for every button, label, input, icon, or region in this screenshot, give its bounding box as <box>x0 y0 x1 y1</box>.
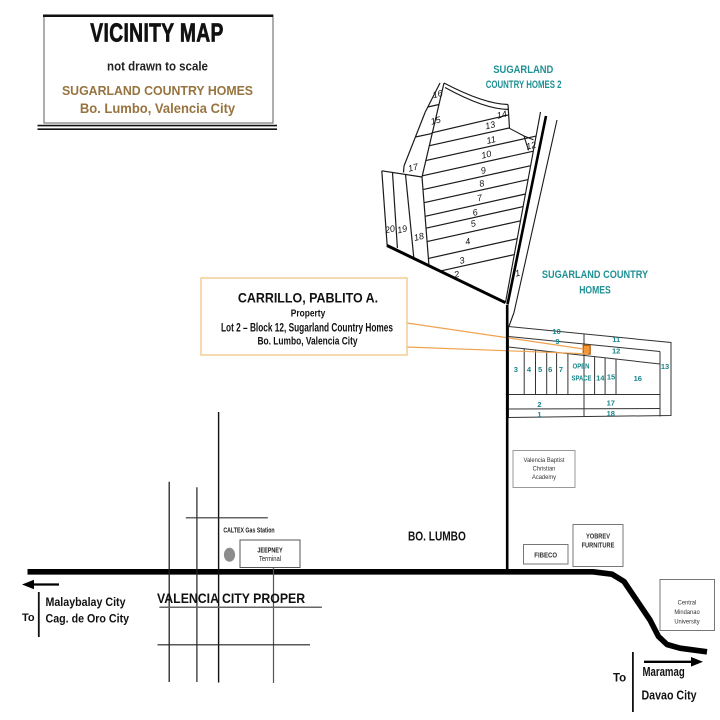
svg-text:3: 3 <box>514 365 518 374</box>
svg-text:14: 14 <box>496 109 508 121</box>
svg-text:4: 4 <box>527 365 532 374</box>
svg-text:OPEN: OPEN <box>573 363 590 371</box>
svg-text:Terminal: Terminal <box>259 555 282 563</box>
svg-text:CALTEX Gas Station: CALTEX Gas Station <box>223 527 274 535</box>
svg-text:COUNTRY HOMES 2: COUNTRY HOMES 2 <box>486 79 562 92</box>
svg-text:To: To <box>22 612 35 624</box>
svg-text:6: 6 <box>548 365 552 374</box>
svg-text:9: 9 <box>480 165 487 176</box>
svg-text:BO. LUMBO: BO. LUMBO <box>408 531 466 544</box>
svg-text:SPACE: SPACE <box>571 375 592 383</box>
svg-text:18: 18 <box>607 409 615 418</box>
svg-text:4: 4 <box>464 236 471 247</box>
svg-text:11: 11 <box>485 134 496 146</box>
svg-text:10: 10 <box>480 149 492 161</box>
svg-text:6: 6 <box>471 207 478 218</box>
svg-text:Valencia Baptist: Valencia Baptist <box>524 457 565 465</box>
svg-text:17: 17 <box>607 399 615 408</box>
svg-text:YOBREV: YOBREV <box>586 533 611 541</box>
svg-text:16: 16 <box>634 374 642 383</box>
svg-text:VICINITY MAP: VICINITY MAP <box>90 17 223 47</box>
svg-text:12: 12 <box>612 347 620 356</box>
svg-text:7: 7 <box>559 365 563 374</box>
svg-text:Bo. Lumbo, Valencia City: Bo. Lumbo, Valencia City <box>80 101 236 117</box>
svg-text:Mindanao: Mindanao <box>674 609 700 617</box>
svg-text:not drawn to scale: not drawn to scale <box>107 59 208 74</box>
svg-text:Bo. Lumbo, Valencia City: Bo. Lumbo, Valencia City <box>257 335 357 348</box>
svg-text:Academy: Academy <box>532 474 557 482</box>
svg-text:HOMES: HOMES <box>579 285 611 297</box>
svg-text:2: 2 <box>537 400 541 409</box>
svg-text:11: 11 <box>612 335 620 344</box>
svg-text:1: 1 <box>537 410 541 419</box>
svg-text:15: 15 <box>430 114 443 126</box>
svg-text:FURNITURE: FURNITURE <box>582 542 615 550</box>
svg-text:Christian: Christian <box>533 465 556 473</box>
svg-text:19: 19 <box>396 223 408 235</box>
svg-text:Maramag: Maramag <box>643 666 685 679</box>
svg-text:13: 13 <box>484 119 496 131</box>
svg-text:18: 18 <box>413 231 425 243</box>
svg-text:5: 5 <box>470 218 478 229</box>
svg-text:13: 13 <box>661 362 669 371</box>
svg-text:Cag. de Oro City: Cag. de Oro City <box>46 613 130 626</box>
svg-text:JEEPNEY: JEEPNEY <box>257 547 283 555</box>
svg-text:5: 5 <box>538 365 542 374</box>
svg-text:20: 20 <box>383 223 396 235</box>
svg-text:3: 3 <box>458 255 465 266</box>
svg-text:Davao City: Davao City <box>642 687 697 702</box>
svg-text:15: 15 <box>607 372 615 381</box>
svg-text:Malaybalay City: Malaybalay City <box>46 596 127 609</box>
svg-text:SUGARLAND COUNTRY: SUGARLAND COUNTRY <box>542 269 648 281</box>
svg-text:Lot 2 – Block 12, Sugarland Co: Lot 2 – Block 12, Sugarland Country Home… <box>221 322 393 335</box>
svg-text:To: To <box>613 673 626 685</box>
svg-text:14: 14 <box>596 373 605 382</box>
svg-text:University: University <box>674 618 700 626</box>
svg-text:17: 17 <box>407 161 420 173</box>
svg-text:FIBECO: FIBECO <box>534 552 557 560</box>
svg-text:7: 7 <box>476 192 484 203</box>
svg-text:Central: Central <box>678 599 697 607</box>
svg-text:1: 1 <box>514 268 521 279</box>
svg-text:Property: Property <box>291 308 326 320</box>
svg-text:VALENCIA CITY PROPER: VALENCIA CITY PROPER <box>157 590 306 606</box>
svg-text:8: 8 <box>478 178 485 189</box>
svg-text:10: 10 <box>552 327 560 336</box>
svg-text:CARRILLO, PABLITO A.: CARRILLO, PABLITO A. <box>238 290 378 306</box>
svg-text:SUGARLAND COUNTRY HOMES: SUGARLAND COUNTRY HOMES <box>62 84 253 98</box>
svg-text:SUGARLAND: SUGARLAND <box>493 64 554 76</box>
